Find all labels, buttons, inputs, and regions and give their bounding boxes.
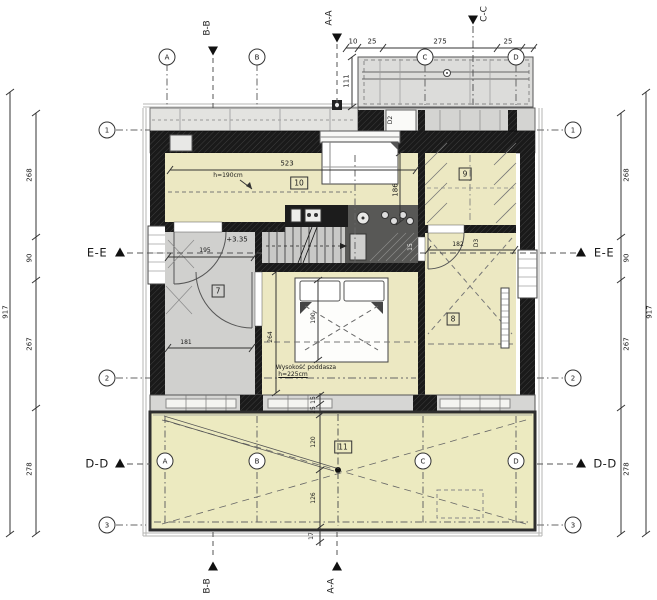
dim-chain-right-1: 268 [624, 168, 631, 181]
section-arrow-icon [115, 248, 125, 257]
floor-plan-linework [0, 0, 657, 600]
level-label: +3.35 [226, 237, 247, 244]
grid-bubble-3-right: 3 [565, 517, 582, 534]
section-arrow-icon [208, 47, 218, 56]
section-arrow-icon [332, 34, 342, 43]
dim-bed-length: 190 [311, 312, 317, 323]
grid-bubble-d-top: D [508, 49, 525, 66]
grid-bubble-c-bottom: C [415, 453, 432, 470]
section-label-aa-top: A-A [326, 10, 335, 25]
dim-room8-width: 182 [452, 242, 463, 248]
dim-chain-left-4: 278 [27, 462, 34, 475]
grid-bubble-2-left: 2 [99, 370, 116, 387]
grid-bubble-1-left: 1 [99, 122, 116, 139]
dim-hall-width2: 181 [180, 340, 191, 346]
grid-bubble-b-top: B [249, 49, 266, 66]
grid-bubble-2-right: 2 [565, 370, 582, 387]
room-9-fill [425, 153, 516, 225]
section-label-dd-left: D-D [85, 458, 108, 470]
bottom-window-band [150, 395, 535, 412]
section-arrow-icon [115, 459, 125, 468]
door-label-d3: D3 [474, 239, 480, 247]
section-label-aa-bottom: A-A [328, 578, 337, 593]
room-number-10: 10 [290, 177, 308, 190]
note-niche-height: h=190cm [213, 173, 242, 179]
room-number-9: 9 [459, 168, 472, 181]
dim-roof-4: 126 [311, 492, 317, 503]
dim-top-1: 10 [349, 39, 358, 46]
section-label-ee-right: E-E [594, 247, 614, 259]
dim-room10-depth: 186 [393, 183, 400, 196]
dim-total-right: 917 [647, 305, 654, 318]
dim-chain-right-3: 267 [624, 337, 631, 350]
grid-bubble-1-right: 1 [565, 122, 582, 139]
dim-top-4: 25 [504, 39, 513, 46]
room-number-8: 8 [447, 313, 460, 326]
section-arrow-icon [208, 562, 218, 571]
dim-total-left: 917 [3, 305, 10, 318]
dim-room10-width: 523 [280, 161, 293, 168]
dim-chain-right-4: 278 [624, 462, 631, 475]
section-label-dd-right: D-D [593, 458, 616, 470]
dim-top-2: 25 [368, 39, 377, 46]
dim-bath-wall: 15 [408, 243, 414, 251]
door-label-d2: D2 [388, 116, 394, 124]
section-label-ee-left: E-E [87, 247, 107, 259]
section-arrow-icon [576, 248, 586, 257]
grid-bubble-c-top: C [417, 49, 434, 66]
dim-roof-3: 120 [311, 436, 317, 447]
grid-bubble-d-bottom: D [508, 453, 525, 470]
balcony [358, 57, 533, 107]
dim-chain-left-2: 90 [27, 254, 34, 263]
dim-balcony-depth: 111 [344, 74, 351, 87]
section-label-bb-top: B-B [204, 20, 213, 35]
grid-bubble-a-bottom: A [157, 453, 174, 470]
dim-roof-1: 15 [311, 396, 317, 404]
dim-chain-left-1: 268 [27, 168, 34, 181]
floor-plan-sheet: B-B A-A C-C B-B A-A E-E D-D E-E D-D A B … [0, 0, 657, 600]
dim-roof-2: 25 [311, 406, 317, 414]
dim-roof-5: 17 [309, 532, 315, 540]
dim-hall-width: 195 [199, 248, 210, 254]
dim-bedroom-side: 264 [268, 331, 274, 342]
room-number-11: 11 [334, 441, 352, 454]
roof-area [150, 412, 535, 530]
grid-bubble-3-left: 3 [99, 517, 116, 534]
section-arrow-icon [332, 562, 342, 571]
grid-bubble-a-top: A [159, 49, 176, 66]
eave-band [150, 100, 358, 131]
dim-chain-left-3: 267 [27, 337, 34, 350]
section-arrow-icon [576, 459, 586, 468]
grid-bubble-b-bottom: B [249, 453, 266, 470]
section-label-bb-bottom: B-B [204, 578, 213, 593]
dim-top-3: 275 [433, 39, 446, 46]
dim-chain-right-2: 90 [624, 254, 631, 263]
fixtures-strip [285, 205, 348, 227]
room-number-7: 7 [212, 285, 225, 298]
note-attic-line2: h=225cm [278, 372, 307, 378]
section-arrow-icon [468, 16, 478, 25]
balcony-wall-strip [358, 108, 535, 131]
section-label-cc-top: C-C [481, 6, 490, 22]
